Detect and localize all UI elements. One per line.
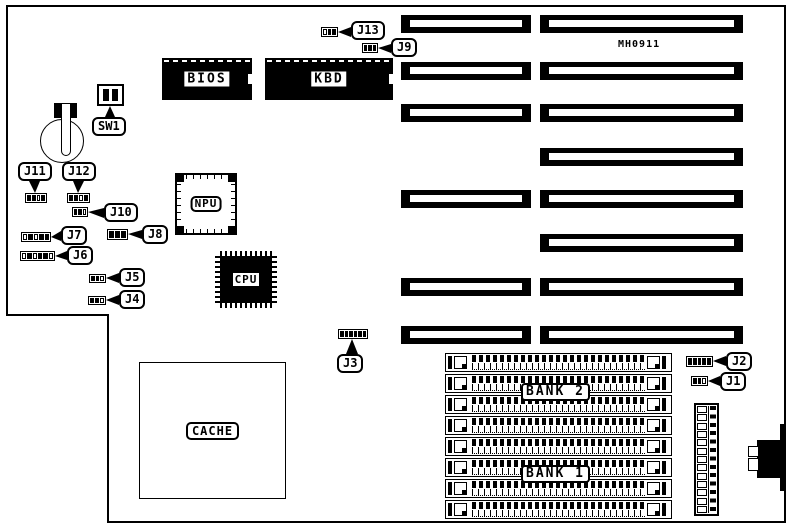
switch-label-sw1: SW1 <box>92 117 126 136</box>
socket-pins <box>231 184 235 224</box>
jumper-label-j4: J4 <box>119 290 145 309</box>
simm-latch <box>662 356 666 369</box>
slot-opening <box>549 109 734 116</box>
leader-j12 <box>73 181 84 193</box>
jumper-j9 <box>362 43 378 53</box>
simm-contacts <box>472 355 645 362</box>
cpu-chip: CPU <box>215 251 277 308</box>
battery-post <box>61 103 71 156</box>
jumper-label-j10: J10 <box>104 203 138 222</box>
simm-contacts <box>472 439 645 446</box>
socket-pins <box>177 184 181 224</box>
simm-latch <box>662 440 666 453</box>
simm-latch <box>448 503 452 516</box>
simm-contacts <box>472 418 645 425</box>
simm-contacts <box>472 376 645 383</box>
cpu-body: CPU <box>220 256 272 303</box>
simm-latch <box>647 440 660 453</box>
simm-latch <box>647 398 660 411</box>
chip-notch <box>248 74 252 84</box>
expansion-slot <box>401 278 531 296</box>
simm-latch <box>454 356 467 369</box>
keyboard-connector-pin <box>748 458 759 471</box>
slot-opening <box>549 67 734 74</box>
simm-contacts <box>472 502 645 509</box>
jumper-j10 <box>72 207 88 217</box>
slot-opening <box>410 195 522 202</box>
expansion-slot <box>540 62 743 80</box>
socket-corner <box>228 175 235 182</box>
expansion-slot <box>401 326 531 344</box>
simm-latch <box>454 419 467 432</box>
simm-contacts <box>472 425 645 433</box>
keyboard-connector <box>748 424 786 491</box>
leader-sw1 <box>105 106 115 117</box>
expansion-slot <box>540 326 743 344</box>
expansion-slot <box>401 104 531 122</box>
simm-contacts <box>472 404 645 412</box>
slot-opening <box>549 331 734 338</box>
simm-contacts <box>472 446 645 454</box>
kbd-chip-label: KBD <box>311 72 346 87</box>
expansion-slot <box>401 190 531 208</box>
jumper-j5 <box>89 274 106 283</box>
leader-j1 <box>708 376 720 386</box>
leader-j3 <box>346 339 358 354</box>
simm-latch <box>448 419 452 432</box>
socket-corner <box>177 226 184 233</box>
expansion-slot <box>540 104 743 122</box>
bios-chip: BIOS <box>162 58 252 100</box>
npu-socket: NPU <box>175 173 237 235</box>
jumper-j8 <box>107 229 128 240</box>
jumper-label-j2: J2 <box>726 352 752 371</box>
keyboard-connector-pin <box>748 446 759 457</box>
simm-latch <box>448 482 452 495</box>
simm-socket <box>445 416 672 435</box>
battery <box>40 103 85 163</box>
simm-latch <box>647 482 660 495</box>
expansion-slot <box>540 148 743 166</box>
bank2-label: BANK 2 <box>521 383 590 401</box>
jumper-j3 <box>338 329 368 339</box>
simm-latch <box>662 461 666 474</box>
simm-latch <box>454 440 467 453</box>
expansion-slot <box>401 62 531 80</box>
leader-j9 <box>378 44 391 53</box>
expansion-slot <box>540 278 743 296</box>
simm-latch <box>647 356 660 369</box>
slot-opening <box>549 20 734 27</box>
slot-opening <box>410 331 522 338</box>
cache-label: CACHE <box>186 422 239 440</box>
simm-latch <box>662 503 666 516</box>
leader-j13 <box>338 27 351 37</box>
jumper-label-j12: J12 <box>62 162 96 181</box>
slot-opening <box>549 283 734 290</box>
simm-socket <box>445 500 672 519</box>
expansion-slot <box>540 15 743 33</box>
slot-opening <box>410 20 522 27</box>
slot-opening <box>410 67 522 74</box>
dip-switch-sw1 <box>97 84 124 106</box>
slot-opening <box>549 239 734 246</box>
simm-latch <box>448 440 452 453</box>
simm-latch <box>454 398 467 411</box>
switch-paddle <box>103 89 109 101</box>
jumper-label-j3: J3 <box>337 354 363 373</box>
simm-contacts <box>472 509 645 517</box>
cpu-label: CPU <box>233 273 260 286</box>
leader-j5 <box>106 273 119 283</box>
simm-latch <box>647 503 660 516</box>
chip-dash-stripe <box>267 60 391 62</box>
leader-j10 <box>88 208 104 218</box>
jumper-label-j1: J1 <box>720 372 746 391</box>
jumper-label-j13: J13 <box>351 21 385 40</box>
jumper-label-j5: J5 <box>119 268 145 287</box>
slot-opening <box>549 153 734 160</box>
kbd-chip: KBD <box>265 58 393 100</box>
simm-socket <box>445 353 672 372</box>
simm-latch <box>647 419 660 432</box>
jumper-j4 <box>88 296 106 305</box>
simm-latch <box>448 356 452 369</box>
slot-opening <box>410 283 522 290</box>
jumper-label-j6: J6 <box>67 246 93 265</box>
simm-latch <box>454 377 467 390</box>
jumper-label-j9: J9 <box>391 38 417 57</box>
bank1-label: BANK 1 <box>521 465 590 483</box>
jumper-j7 <box>21 232 51 242</box>
jumper-label-j7: J7 <box>61 226 87 245</box>
jumper-j11 <box>25 193 47 203</box>
chip-dash-stripe <box>164 60 250 62</box>
slot-opening <box>549 195 734 202</box>
simm-contacts <box>472 488 645 496</box>
bios-chip-label: BIOS <box>184 72 229 87</box>
slot-opening <box>410 109 522 116</box>
socket-corner <box>228 226 235 233</box>
simm-latch <box>454 482 467 495</box>
power-pins <box>710 406 716 513</box>
socket-pins <box>186 229 226 233</box>
keyboard-connector-body <box>757 440 786 478</box>
simm-latch <box>448 398 452 411</box>
simm-latch <box>448 377 452 390</box>
simm-contacts <box>472 362 645 370</box>
leader-j6 <box>55 251 67 260</box>
power-pin-column <box>697 406 707 513</box>
jumper-j1 <box>691 376 708 386</box>
simm-latch <box>662 398 666 411</box>
expansion-slot <box>401 15 531 33</box>
jumper-j6 <box>20 251 55 261</box>
jumper-j2 <box>686 356 713 367</box>
socket-pins <box>186 175 226 179</box>
motherboard-diagram: MH0911 BIOS KBD SW1 J13 J9 J11 J12 J10 J… <box>0 0 791 528</box>
power-connector <box>694 403 719 516</box>
cache-area: CACHE <box>139 362 286 499</box>
board-part-number: MH0911 <box>618 39 660 50</box>
jumper-j12 <box>67 193 90 203</box>
simm-latch <box>647 377 660 390</box>
simm-latch <box>454 503 467 516</box>
simm-socket <box>445 437 672 456</box>
jumper-j13 <box>321 27 338 37</box>
socket-corner <box>177 175 184 182</box>
power-divider <box>708 406 709 513</box>
simm-latch <box>662 482 666 495</box>
simm-latch <box>647 461 660 474</box>
chip-notch <box>389 74 393 84</box>
leader-j2 <box>713 356 726 366</box>
npu-label: NPU <box>191 196 222 212</box>
switch-paddle <box>112 89 118 101</box>
expansion-slot <box>540 190 743 208</box>
leader-j8 <box>128 230 142 239</box>
leader-j7 <box>51 231 61 241</box>
simm-latch <box>454 461 467 474</box>
simm-latch <box>448 461 452 474</box>
leader-j11 <box>29 181 40 193</box>
jumper-label-j11: J11 <box>18 162 52 181</box>
leader-j4 <box>106 295 119 305</box>
simm-latch <box>662 377 666 390</box>
simm-latch <box>662 419 666 432</box>
jumper-label-j8: J8 <box>142 225 168 244</box>
expansion-slot <box>540 234 743 252</box>
